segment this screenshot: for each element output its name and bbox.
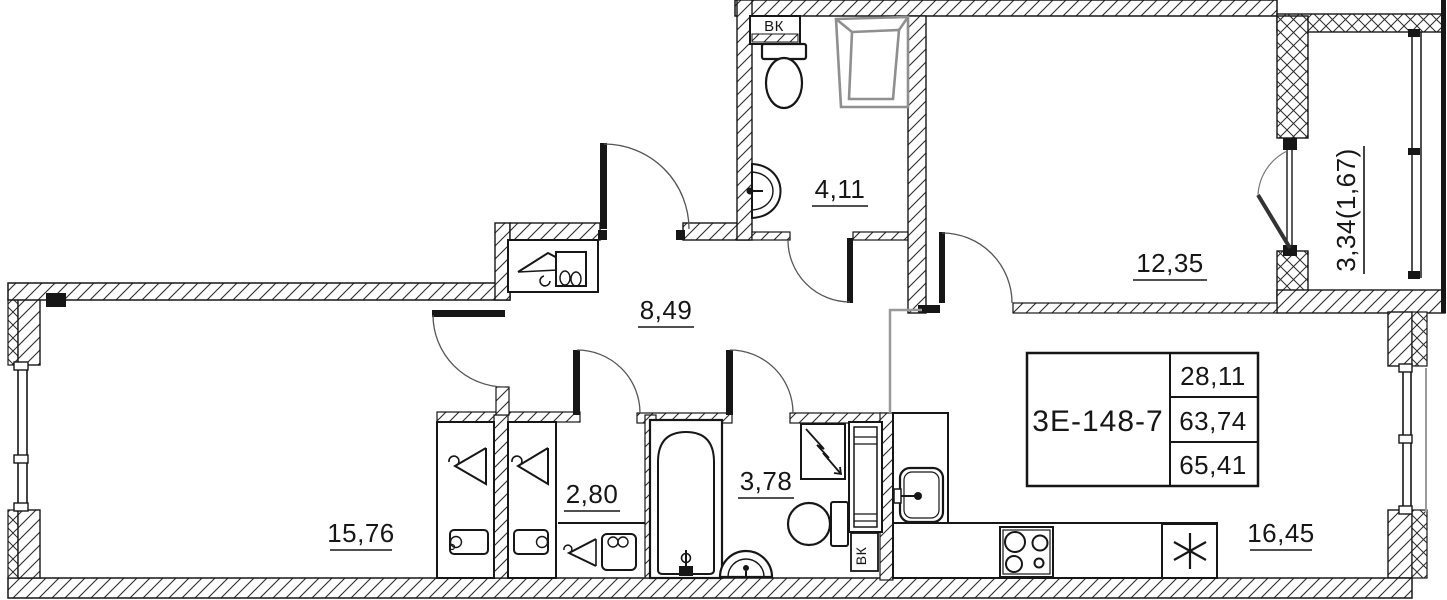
shower-tray — [836, 17, 908, 107]
fridge-icon — [1162, 524, 1217, 578]
stove-icon — [1000, 527, 1053, 577]
window-balcony-glazing — [1408, 29, 1421, 279]
wall-left-bottom — [18, 510, 40, 578]
info-table: 3Е-148-7 28,11 63,74 65,41 — [1027, 353, 1258, 486]
wall-top — [735, 0, 1277, 16]
wall-bedroom-bottom — [1013, 303, 1277, 313]
unit-code: 3Е-148-7 — [1032, 405, 1163, 438]
entry-jamb-right — [676, 230, 685, 240]
wall-left-top — [18, 298, 40, 365]
kitchen-zone-boundary-line — [890, 310, 922, 413]
kitchen-sink-cabinet — [893, 413, 948, 523]
unit-area-living: 28,11 — [1180, 361, 1246, 391]
wall-living-door-jamb — [496, 387, 509, 415]
floor-plan-svg: 3Е-148-7 28,11 63,74 65,41 4,11 12,35 3,… — [0, 0, 1447, 600]
wardrobe-door — [573, 350, 640, 415]
label-kitchen-living: 16,45 — [1247, 518, 1315, 548]
label-hallway: 8,49 — [640, 295, 693, 325]
washbasin-main — [720, 551, 772, 578]
balcony-door-leaf — [1258, 195, 1290, 248]
wall-bottom — [8, 578, 1412, 598]
drawer-icon — [514, 530, 548, 554]
bathroom-main-door — [726, 350, 793, 415]
label-balcony: 3,34(1,67) — [1331, 148, 1361, 272]
window-living-room — [14, 362, 28, 511]
wall-closet-divider — [494, 415, 508, 578]
unit-area-main: 63,74 — [1179, 406, 1247, 436]
unit-area-total: 65,41 — [1179, 450, 1247, 480]
wall-left-bottom-outer — [8, 510, 18, 578]
wall-balcony-bottom — [1277, 290, 1445, 313]
floor-plan: 3Е-148-7 28,11 63,74 65,41 4,11 12,35 3,… — [0, 0, 1447, 600]
electric-panel-icon — [801, 424, 845, 479]
wall-bath-stub-b — [853, 232, 908, 240]
wall-bath-bedroom-divider — [908, 16, 926, 313]
wall-balcony-outer-edge — [1441, 0, 1446, 313]
label-duct-top: ВК — [764, 18, 784, 35]
balcony-door — [1258, 138, 1297, 256]
label-wardrobe: 2,80 — [566, 479, 619, 509]
hanger-icon — [569, 539, 596, 566]
entry-door — [600, 143, 689, 229]
washbasin-top — [747, 164, 781, 218]
wall-column — [46, 293, 66, 307]
fixtures — [437, 16, 1217, 578]
faucet-icon — [914, 492, 922, 500]
wall-kitchen-right-top-outer — [1412, 312, 1427, 366]
hall-cabinet — [508, 240, 598, 292]
label-bathroom-top: 4,11 — [815, 174, 866, 204]
label-duct-bottom: ВК — [853, 546, 869, 565]
bedroom-door — [939, 232, 1012, 303]
wall-left-top-outer — [8, 298, 18, 365]
wall-kitchen-right-top — [1388, 312, 1412, 366]
drawer-icon — [450, 530, 488, 554]
wall-kitchen-right-bottom-outer — [1412, 510, 1427, 578]
label-bedroom: 12,35 — [1136, 248, 1204, 278]
wall-living-top — [8, 283, 510, 300]
living-room-door — [432, 310, 505, 387]
wardrobe-cabinet-a — [437, 422, 494, 578]
entry-jamb-left — [598, 230, 607, 240]
wall-hall-top-a — [510, 223, 600, 240]
label-living-room: 15,76 — [327, 518, 395, 548]
duct-shaft — [849, 422, 882, 532]
wardrobe-cabinet-b — [508, 422, 556, 578]
wall-balcony-divider-top — [1277, 16, 1308, 138]
walls — [8, 0, 1446, 598]
wardrobe-room-lower — [558, 523, 645, 570]
window-kitchen — [1399, 364, 1426, 514]
wall-bath-stub-a — [752, 232, 790, 240]
toilet-top — [762, 44, 806, 108]
toilet-main — [788, 502, 848, 546]
bathroom-top-door — [788, 238, 853, 303]
label-bathroom-main: 3,78 — [740, 466, 793, 496]
wall-kitchen-right-bottom — [1388, 510, 1412, 578]
bathtub — [650, 420, 722, 578]
